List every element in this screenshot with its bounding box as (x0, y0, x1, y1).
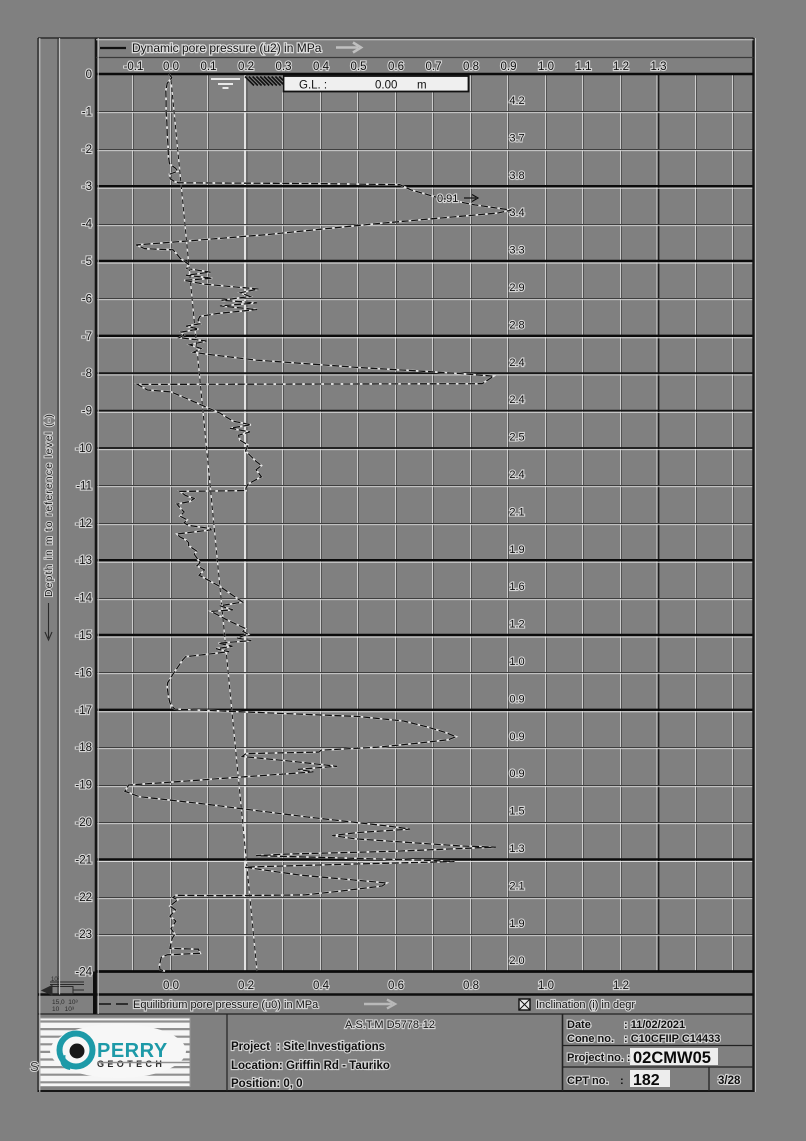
svg-text:0.9: 0.9 (509, 731, 524, 743)
svg-text:02CMW05: 02CMW05 (633, 1049, 711, 1067)
svg-text:Project : Site Investigations: Project : Site Investigations (231, 1041, 385, 1053)
svg-text:1.2: 1.2 (509, 619, 524, 631)
svg-text:0.2: 0.2 (238, 980, 254, 992)
svg-text:1.2: 1.2 (613, 61, 629, 73)
svg-text:Depth in m to reference level: Depth in m to reference level (-) (43, 413, 55, 597)
svg-text:-19: -19 (75, 780, 92, 792)
svg-text:-2: -2 (82, 144, 92, 156)
svg-text:CPT no.: CPT no. (567, 1075, 609, 1087)
svg-text:2.0: 2.0 (509, 955, 524, 967)
svg-text:0.1: 0.1 (201, 61, 217, 73)
svg-text:-4: -4 (82, 219, 93, 231)
svg-text:-13: -13 (75, 555, 92, 567)
svg-text:1.9: 1.9 (509, 918, 524, 930)
svg-text:1.0: 1.0 (538, 61, 554, 73)
svg-text:-17: -17 (75, 705, 92, 717)
svg-text:3.7: 3.7 (509, 132, 524, 144)
svg-text:-12: -12 (75, 518, 92, 530)
svg-text:Position: 0, 0: Position: 0, 0 (231, 1078, 303, 1090)
svg-text:0.7: 0.7 (426, 61, 442, 73)
svg-text:-6: -6 (82, 293, 92, 305)
svg-text:-15: -15 (75, 630, 92, 642)
svg-text:1.0: 1.0 (509, 656, 524, 668)
svg-text:1.6: 1.6 (509, 581, 524, 593)
svg-text:2.4: 2.4 (509, 469, 524, 481)
svg-text:0.4: 0.4 (313, 980, 330, 992)
svg-text:0.3: 0.3 (276, 61, 292, 73)
svg-text:m: m (417, 80, 427, 92)
svg-text:G.L. :: G.L. : (299, 80, 327, 92)
svg-text:S: S (30, 1059, 39, 1074)
svg-text:2.4: 2.4 (509, 394, 524, 406)
svg-text:-18: -18 (75, 742, 92, 754)
svg-text:3.8: 3.8 (509, 170, 524, 182)
svg-text:Location: Griffin Rd - Tauriko: Location: Griffin Rd - Tauriko (231, 1060, 390, 1072)
svg-text:-8: -8 (82, 368, 92, 380)
svg-text:-22: -22 (75, 892, 92, 904)
svg-text:182: 182 (633, 1072, 660, 1089)
svg-text:0.8: 0.8 (463, 980, 479, 992)
svg-text:4.2: 4.2 (509, 95, 524, 107)
svg-text:-23: -23 (75, 929, 92, 941)
svg-text:2.9: 2.9 (509, 282, 524, 294)
svg-text:2.1: 2.1 (509, 880, 524, 892)
svg-text:-16: -16 (75, 667, 92, 679)
svg-text:Date: Date (567, 1019, 591, 1031)
svg-text:3.3: 3.3 (509, 245, 524, 257)
svg-text:0.8: 0.8 (463, 61, 479, 73)
svg-text:-10: -10 (75, 443, 92, 455)
svg-text:Project no. :: Project no. : (567, 1052, 631, 1064)
svg-text:: C10CFIIP C14433: : C10CFIIP C14433 (624, 1033, 720, 1045)
svg-text:-5: -5 (82, 256, 92, 268)
svg-text:3/28: 3/28 (718, 1075, 741, 1087)
svg-text:-20: -20 (75, 817, 92, 829)
svg-text:-7: -7 (82, 331, 92, 343)
svg-text::: : (620, 1075, 624, 1087)
svg-text:15,0 10³: 15,0 10³ (52, 999, 78, 1006)
svg-text:3.4: 3.4 (509, 207, 524, 219)
svg-text:-3: -3 (82, 181, 92, 193)
svg-text:0.0: 0.0 (163, 980, 179, 992)
svg-text:-9: -9 (82, 406, 92, 418)
svg-text:1.0: 1.0 (538, 980, 554, 992)
svg-text:1.3: 1.3 (509, 843, 524, 855)
svg-text:1.1: 1.1 (576, 61, 592, 73)
svg-text:-1: -1 (82, 106, 92, 118)
svg-text:-24: -24 (75, 967, 92, 979)
svg-text:Inclination (i) in degr: Inclination (i) in degr (536, 999, 635, 1011)
svg-text:-14: -14 (75, 593, 92, 605)
svg-text:1.9: 1.9 (509, 544, 524, 556)
svg-text:: 11/02/2021: : 11/02/2021 (624, 1019, 685, 1031)
svg-text:-0.1: -0.1 (124, 61, 144, 73)
svg-text:0.9: 0.9 (509, 693, 524, 705)
svg-text:1.2: 1.2 (613, 980, 629, 992)
svg-text:2.8: 2.8 (509, 319, 524, 331)
svg-text:0.4: 0.4 (313, 61, 330, 73)
svg-text:0.6: 0.6 (388, 980, 404, 992)
svg-text:2.4: 2.4 (509, 357, 524, 369)
svg-text:0: 0 (86, 69, 92, 81)
svg-text:0.5: 0.5 (351, 61, 367, 73)
svg-text:0.9: 0.9 (509, 768, 524, 780)
svg-text:1.3: 1.3 (651, 61, 667, 73)
svg-text:10²: 10² (51, 977, 60, 983)
svg-text:Cone no.: Cone no. (567, 1033, 614, 1045)
svg-text:0.91: 0.91 (437, 193, 458, 205)
svg-text:10 10³: 10 10³ (52, 1006, 75, 1013)
svg-text:0.9: 0.9 (501, 61, 517, 73)
svg-text:GEOTECH: GEOTECH (97, 1059, 165, 1069)
svg-text:0.0: 0.0 (163, 61, 179, 73)
svg-text:0.6: 0.6 (388, 61, 404, 73)
svg-text:2.1: 2.1 (509, 506, 524, 518)
svg-text:-11: -11 (76, 480, 92, 492)
svg-text:Dynamic pore pressure (u2) in: Dynamic pore pressure (u2) in MPa (132, 41, 322, 55)
svg-text:Equilibrium pore pressure (u0): Equilibrium pore pressure (u0) in MPa (133, 999, 319, 1011)
svg-text:2.5: 2.5 (509, 432, 524, 444)
svg-text:1.5: 1.5 (509, 806, 524, 818)
svg-text:0.00: 0.00 (375, 80, 397, 92)
svg-text:A.S.T.M D5778-12: A.S.T.M D5778-12 (345, 1019, 435, 1031)
svg-text:0.2: 0.2 (238, 61, 254, 73)
svg-text:-21: -21 (75, 854, 92, 866)
